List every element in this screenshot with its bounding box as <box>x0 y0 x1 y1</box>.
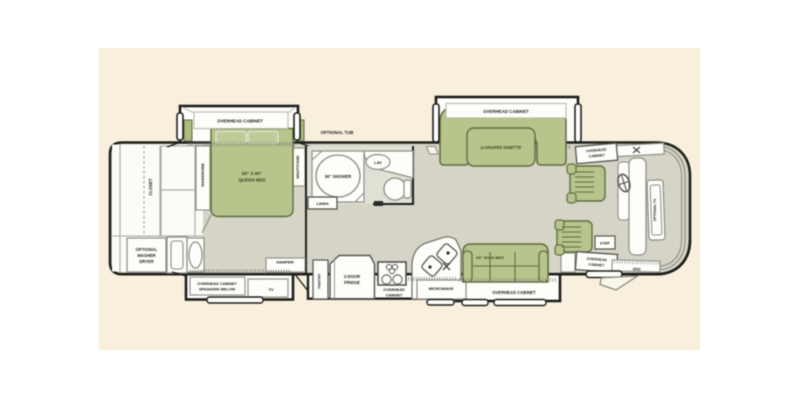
svg-text:LINEN: LINEN <box>317 201 329 206</box>
svg-text:OPTIONAL TUB: OPTIONAL TUB <box>321 130 354 135</box>
svg-text:WARDROBE: WARDROBE <box>200 163 205 187</box>
svg-text:MICROWAVE: MICROWAVE <box>429 286 454 291</box>
svg-text:OVERHEAD CABINET: OVERHEAD CABINET <box>492 290 536 295</box>
svg-text:ENC: ENC <box>633 267 641 271</box>
svg-text:OPTIONAL: OPTIONAL <box>136 247 158 252</box>
svg-text:LAV: LAV <box>374 160 382 165</box>
svg-text:OVERHEAD CABINET: OVERHEAD CABINET <box>483 109 529 114</box>
svg-text:OVERHEAD: OVERHEAD <box>383 288 405 292</box>
svg-text:36" SHOWER: 36" SHOWER <box>325 174 352 179</box>
svg-text:TV: TV <box>268 287 273 292</box>
svg-text:WASHER: WASHER <box>137 253 155 258</box>
svg-text:2-DOOR: 2-DOOR <box>344 274 360 279</box>
svg-text:NIGHTSTAND: NIGHTSTAND <box>296 155 300 179</box>
svg-text:DRYER: DRYER <box>139 259 154 264</box>
svg-text:SPEAKERS BELOW: SPEAKERS BELOW <box>199 288 235 292</box>
svg-text:OPTIONAL TV: OPTIONAL TV <box>653 198 657 221</box>
svg-text:STEP: STEP <box>600 242 610 246</box>
svg-text:60" X 80": 60" X 80" <box>242 171 262 176</box>
svg-text:CLOSET: CLOSET <box>148 178 153 195</box>
svg-text:PANTRY: PANTRY <box>318 273 322 289</box>
svg-text:QUEEN BED: QUEEN BED <box>238 178 266 183</box>
svg-text:FRIDGE: FRIDGE <box>344 280 360 285</box>
svg-text:HAMPER: HAMPER <box>276 260 293 265</box>
svg-text:OVERHEAD CABINET: OVERHEAD CABINET <box>197 282 237 286</box>
svg-text:U-SHAPED DINETTE: U-SHAPED DINETTE <box>481 145 522 150</box>
svg-text:60" SOFA BED: 60" SOFA BED <box>476 255 504 260</box>
svg-text:OVERHEAD CABINET: OVERHEAD CABINET <box>217 119 263 124</box>
svg-text:CABINET: CABINET <box>386 294 404 298</box>
